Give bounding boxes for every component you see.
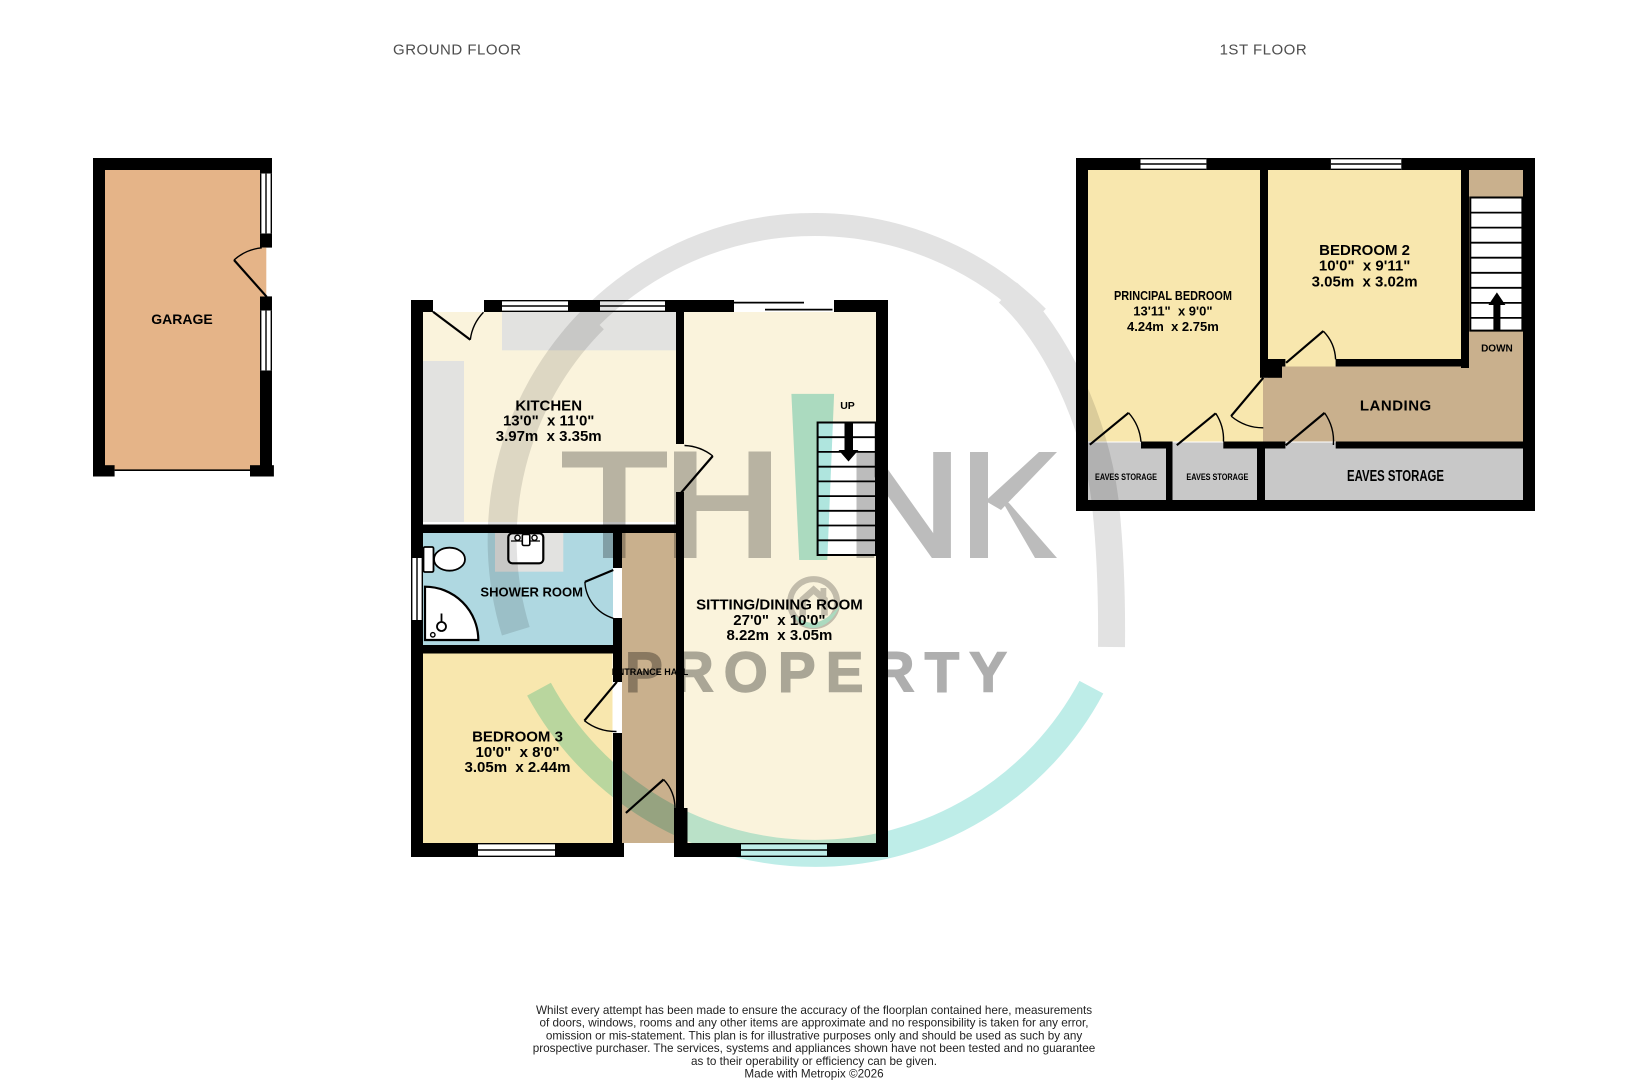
svg-text:1ST FLOOR: 1ST FLOOR [1220, 42, 1308, 59]
svg-text:4.24m x 2.75m: 4.24m x 2.75m [1127, 319, 1219, 334]
svg-text:Whilst every attempt has been: Whilst every attempt has been made to en… [536, 1004, 1092, 1017]
svg-text:prospective purchaser. The ser: prospective purchaser. The services, sys… [533, 1042, 1095, 1055]
svg-text:GARAGE: GARAGE [151, 311, 212, 327]
svg-text:GROUND FLOOR: GROUND FLOOR [393, 42, 522, 59]
svg-text:13'11" x 9'0": 13'11" x 9'0" [1133, 304, 1212, 319]
svg-text:3.05m x 3.02m: 3.05m x 3.02m [1312, 273, 1418, 290]
svg-text:DOWN: DOWN [1481, 344, 1513, 355]
svg-text:BEDROOM 2: BEDROOM 2 [1319, 242, 1410, 259]
svg-text:PRINCIPAL BEDROOM: PRINCIPAL BEDROOM [1114, 288, 1232, 303]
svg-text:EAVES STORAGE: EAVES STORAGE [1347, 468, 1444, 485]
svg-text:of doors, windows, rooms and a: of doors, windows, rooms and any other i… [540, 1017, 1089, 1030]
svg-text:EAVES STORAGE: EAVES STORAGE [1186, 472, 1248, 482]
svg-text:10'0" x 9'11": 10'0" x 9'11" [1319, 258, 1410, 275]
svg-text:Made with Metropix ©2026: Made with Metropix ©2026 [744, 1068, 883, 1080]
svg-text:omission or mis-statement. Thi: omission or mis-statement. This plan is … [546, 1029, 1083, 1042]
svg-text:UP: UP [840, 400, 855, 412]
svg-text:LANDING: LANDING [1360, 398, 1432, 415]
svg-text:3.05m x 2.44m: 3.05m x 2.44m [465, 759, 571, 776]
svg-text:as to their operability or eff: as to their operability or efficiency ca… [691, 1055, 937, 1068]
